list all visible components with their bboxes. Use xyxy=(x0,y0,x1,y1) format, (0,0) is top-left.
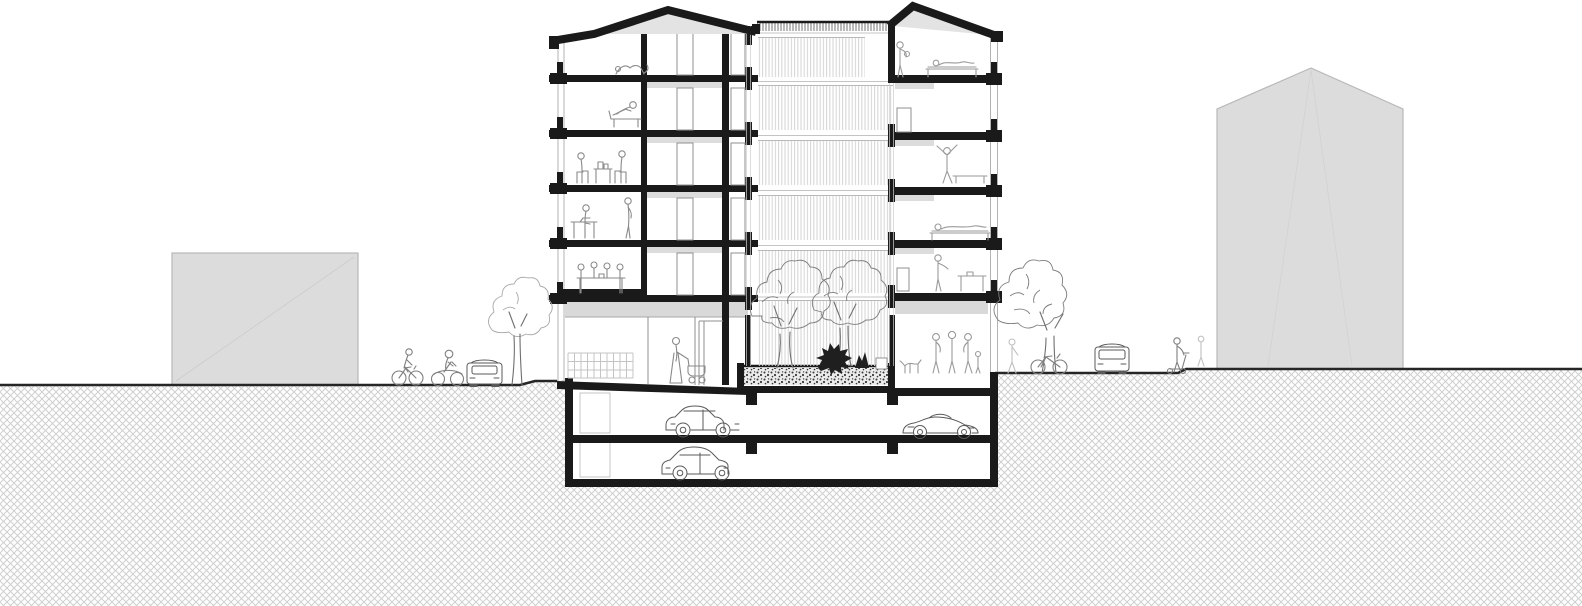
person-lying-on-bed xyxy=(930,224,990,240)
group-of-three-people xyxy=(933,331,981,373)
motorcyclist xyxy=(432,350,464,385)
groundfloor-shelf-grid xyxy=(568,353,633,378)
parked-car-front-right xyxy=(1095,344,1129,374)
ceiling-strip-l4 xyxy=(647,247,722,253)
person-standing-attic xyxy=(897,42,910,77)
louver-band-5 xyxy=(758,85,893,130)
left-atrium-wall xyxy=(745,26,752,366)
planter-box xyxy=(876,358,887,369)
dog xyxy=(900,360,921,373)
left-wing-partition-wall xyxy=(641,18,647,302)
ground-floor-slab-right xyxy=(893,388,998,396)
louver-band-4 xyxy=(758,140,893,185)
architectural-section-canvas xyxy=(0,0,1582,606)
person-at-desk xyxy=(571,205,597,238)
person-lying-on-bed-attic xyxy=(926,60,978,77)
left-outer-wall xyxy=(558,37,564,381)
louver-band-3 xyxy=(758,195,893,240)
person-exercising xyxy=(937,145,987,183)
ceiling-strip-l2 xyxy=(647,137,722,143)
louver-band-2 xyxy=(758,250,893,293)
person-at-small-table xyxy=(935,255,986,291)
ceiling-strip-r4 xyxy=(895,248,934,254)
slab-right-1 xyxy=(888,75,1002,83)
ground-hatch-right xyxy=(990,368,1582,606)
right-wing-closet-1 xyxy=(897,108,911,132)
person-standing-f3 xyxy=(625,198,632,238)
groundfloor-ceiling-left xyxy=(565,302,748,317)
person-with-pram xyxy=(670,338,705,384)
ground-hatch-below-garage xyxy=(557,483,998,606)
left-wing-corridor-wall xyxy=(722,24,729,385)
slab-right-5 xyxy=(888,293,1002,301)
cyclist xyxy=(392,349,423,385)
right-neighbor-building xyxy=(1217,68,1403,369)
parked-car-front-left xyxy=(467,360,502,387)
right-atrium-wall xyxy=(888,25,895,366)
right-wall-slab-anchors xyxy=(986,62,1002,303)
leaning-bicycle xyxy=(1031,354,1067,374)
pedestrian-faint-1 xyxy=(1008,339,1018,373)
right-wing-scenes xyxy=(897,42,990,373)
left-wing-doors xyxy=(677,33,745,295)
ceiling-strip-r2 xyxy=(895,140,934,146)
terrace-slab-thickening xyxy=(557,289,645,296)
courtyard-planter xyxy=(737,363,895,393)
slab-right-3 xyxy=(888,187,1002,195)
louver-band-attic xyxy=(758,37,865,77)
ground-hatch-left xyxy=(0,380,565,606)
garage-column-1 xyxy=(746,393,757,405)
ceiling-strip-l1 xyxy=(647,82,722,88)
pedestrian-faint-2 xyxy=(1198,336,1204,366)
right-roof-gutter xyxy=(991,31,1003,42)
garage-column-4 xyxy=(887,443,898,454)
street-tree-right xyxy=(994,260,1067,374)
left-wing-scenes xyxy=(571,65,705,383)
section-drawing xyxy=(0,0,1582,606)
two-people-at-table xyxy=(577,151,626,183)
ceiling-strip-r3 xyxy=(895,195,934,201)
basement-parking xyxy=(557,363,998,487)
basement-wall-left xyxy=(565,378,573,487)
groundfloor-entrance xyxy=(648,317,723,385)
street-right xyxy=(994,260,1204,374)
basement-bottom-slab xyxy=(565,479,998,487)
four-people-at-long-table xyxy=(577,262,625,293)
person-on-lounge-chair xyxy=(609,102,641,127)
street-left xyxy=(392,277,552,386)
ceiling-strip-l3 xyxy=(647,192,722,198)
slab-right-4 xyxy=(888,240,1002,248)
slab-right-2 xyxy=(888,132,1002,140)
basement-mid-slab xyxy=(573,435,990,443)
ceiling-strip-r1 xyxy=(895,83,934,89)
left-wing xyxy=(549,18,758,385)
planter-bottom-slab xyxy=(737,386,895,393)
right-wing-closet-2 xyxy=(897,268,909,291)
garage-column-2 xyxy=(887,393,898,405)
parapet-junction xyxy=(752,24,760,34)
right-wing xyxy=(888,25,1002,372)
roof-parapet-railing xyxy=(757,22,893,31)
planting-bed xyxy=(744,368,888,385)
left-roof-gutter xyxy=(549,36,559,49)
garage-column-3 xyxy=(746,443,757,454)
street-tree-left xyxy=(488,277,552,385)
groundfloor-ceiling-right xyxy=(895,301,988,314)
